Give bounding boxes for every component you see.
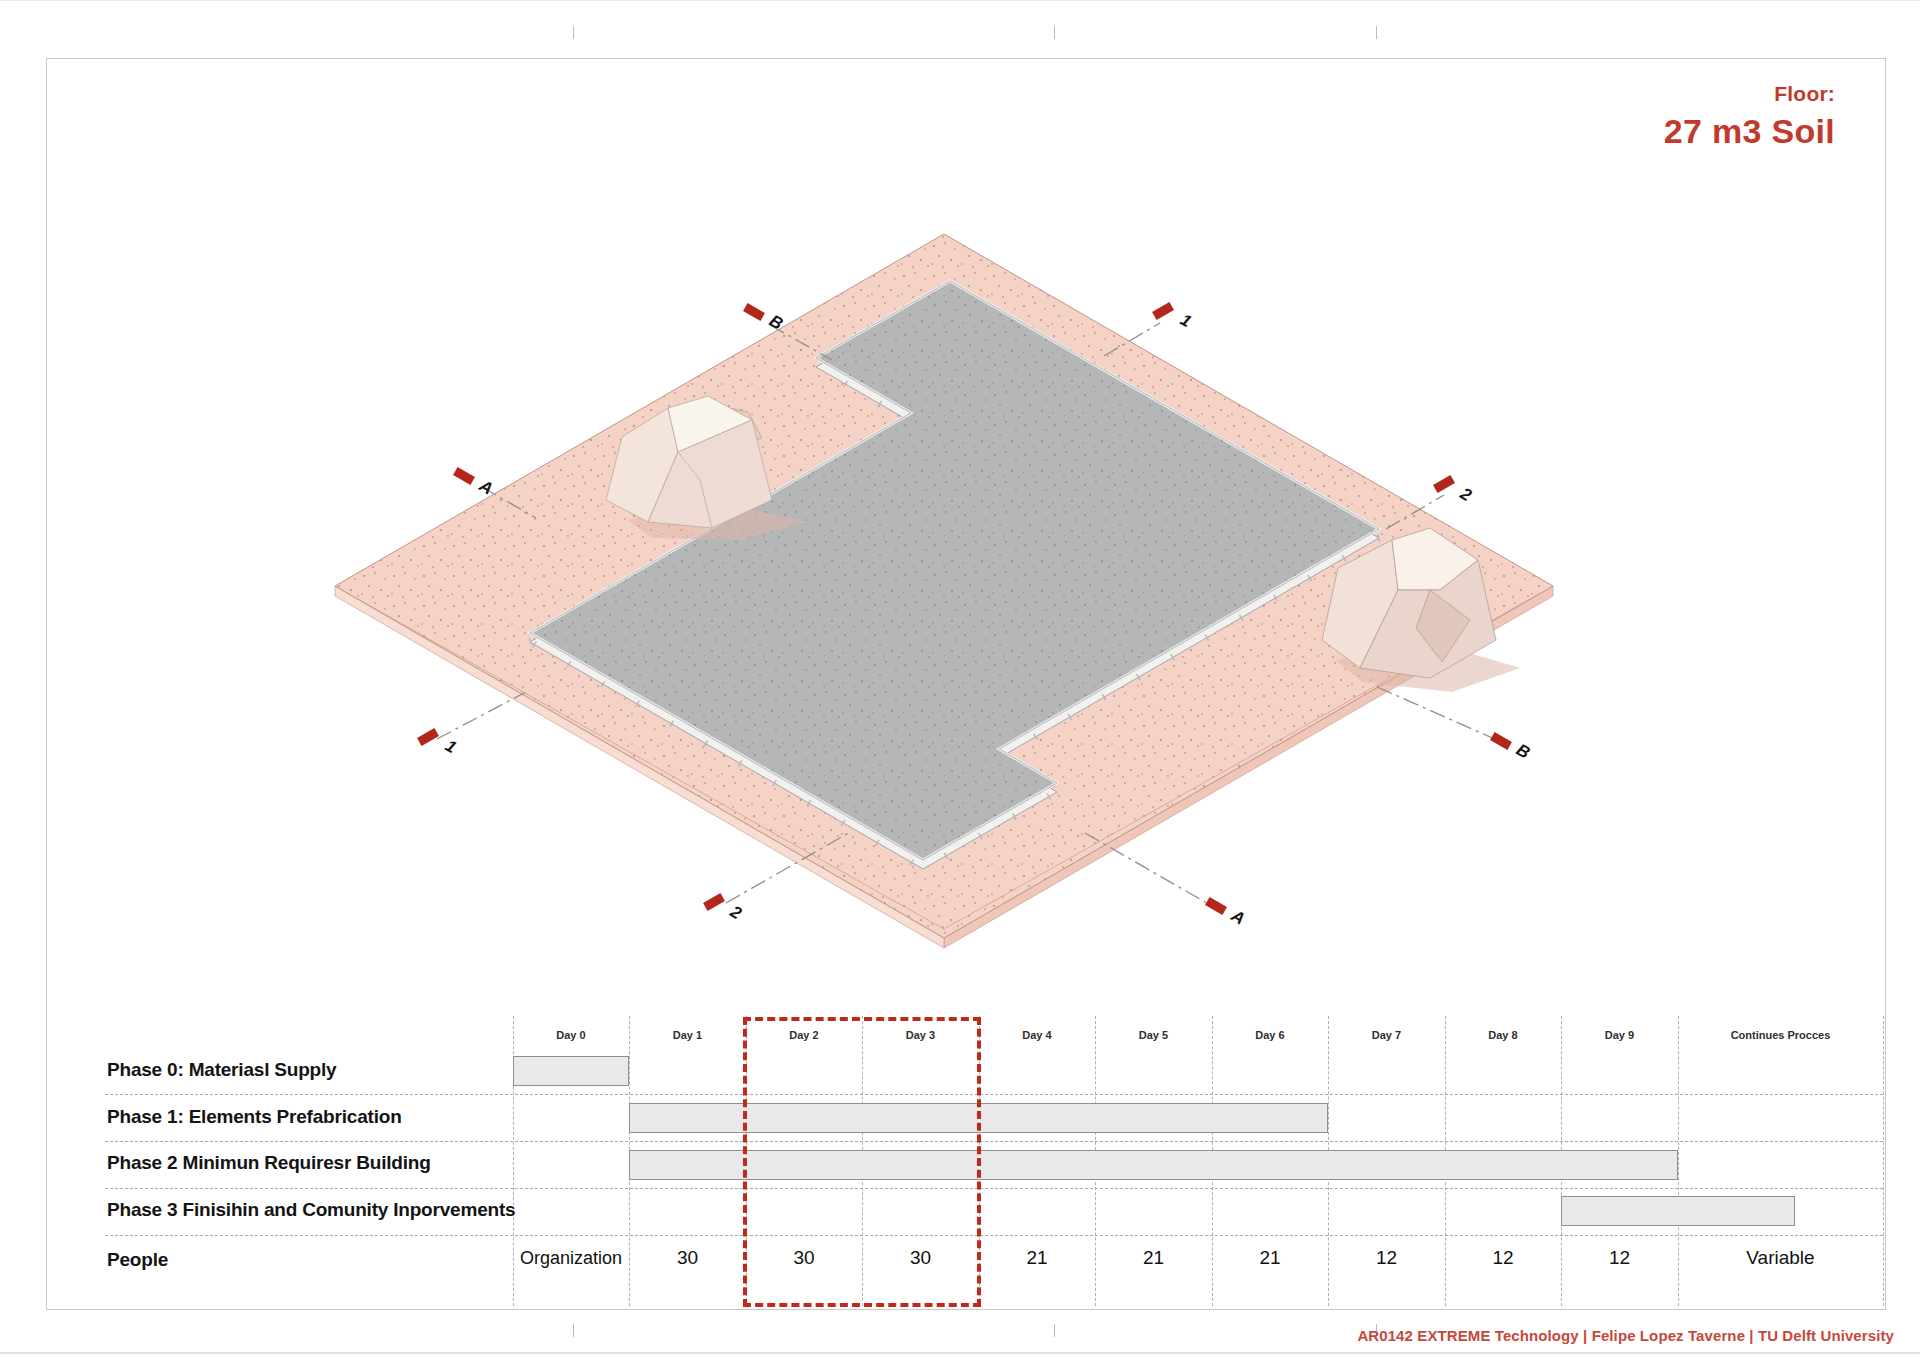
gantt-row-label-phase-2: Phase 2 Minimun Requiresr Building	[107, 1152, 517, 1180]
gantt-row-separator	[105, 1235, 1883, 1236]
gantt-row-label-phase-1: Phase 1: Elements Prefabrication	[107, 1106, 517, 1134]
section-tag-letter: 2	[1456, 484, 1475, 506]
section-tag-a-left: A	[453, 467, 496, 499]
gantt-grid-vline	[1883, 1016, 1884, 1306]
gantt-people-value-0: Organization	[513, 1245, 629, 1271]
gantt-col-header-9: Day 9	[1561, 1027, 1678, 1043]
gantt-people-value-4: 21	[979, 1245, 1095, 1271]
gantt-row-separator	[105, 1141, 1883, 1142]
section-tag-1-top: 1	[1152, 302, 1195, 331]
gantt-highlight-day2-day3	[743, 1017, 981, 1307]
section-tag-marker	[1152, 302, 1174, 320]
section-tag-letter: 2	[726, 902, 745, 924]
gantt-col-header-7: Day 7	[1328, 1027, 1445, 1043]
section-tag-letter: A	[1227, 906, 1248, 929]
section-tag-b-bottom: B	[1490, 732, 1533, 763]
gantt-people-value-5: 21	[1095, 1245, 1212, 1271]
section-tag-2-right: 2	[1433, 475, 1475, 505]
gantt-people-value-7: 12	[1328, 1245, 1445, 1271]
gantt-bar-phase-0	[513, 1056, 629, 1086]
gantt-col-header-6: Day 6	[1212, 1027, 1328, 1043]
gantt-col-header-1: Day 1	[629, 1027, 746, 1043]
gantt-people-value-1: 30	[629, 1245, 746, 1271]
architecture-sheet: { "page": { "title_label": "Floor:", "ti…	[0, 0, 1920, 1357]
gantt-people-value-8: 12	[1445, 1245, 1561, 1271]
gantt-col-header-0: Day 0	[513, 1027, 629, 1043]
gantt-row-label-phase-3: Phase 3 Finisihin and Comunity Inporveme…	[107, 1199, 517, 1227]
section-tag-letter: B	[1513, 740, 1533, 763]
section-tag-marker	[743, 303, 765, 321]
gantt-bar-phase-3	[1561, 1196, 1795, 1226]
gantt-col-header-5: Day 5	[1095, 1027, 1212, 1043]
section-tag-1-bottom: 1	[417, 728, 460, 757]
gantt-row-label-phase-0: Phase 0: Materiasl Supply	[107, 1059, 517, 1087]
gantt-people-value-6: 21	[1212, 1245, 1328, 1271]
section-tag-a-bottom: A	[1205, 897, 1248, 929]
gantt-row-separator	[105, 1188, 1883, 1189]
section-line-1-bottom	[437, 693, 524, 739]
section-tag-letter: 1	[442, 736, 460, 757]
section-tag-marker	[453, 467, 475, 485]
section-line-a-bottom	[1085, 833, 1212, 906]
gantt-people-value-9: 12	[1561, 1245, 1678, 1271]
section-line-b-bottom	[1377, 687, 1497, 740]
gantt-col-header-8: Day 8	[1445, 1027, 1561, 1043]
section-tag-marker	[703, 893, 725, 911]
section-tag-marker	[417, 728, 439, 746]
gantt-col-header-10: Continues Procces	[1678, 1027, 1883, 1043]
gantt-row-label-people: People	[107, 1249, 517, 1277]
section-tag-letter: 1	[1177, 310, 1195, 331]
gantt-people-value-10: Variable	[1678, 1245, 1883, 1271]
gantt-row-separator	[105, 1094, 1883, 1095]
section-tag-marker	[1490, 732, 1512, 750]
footer-credit: AR0142 EXTREME Technology | Felipe Lopez…	[994, 1327, 1894, 1344]
section-tag-2-bottom: 2	[703, 893, 745, 923]
gantt-col-header-4: Day 4	[979, 1027, 1095, 1043]
section-tag-marker	[1433, 475, 1455, 493]
section-tag-marker	[1205, 897, 1227, 915]
